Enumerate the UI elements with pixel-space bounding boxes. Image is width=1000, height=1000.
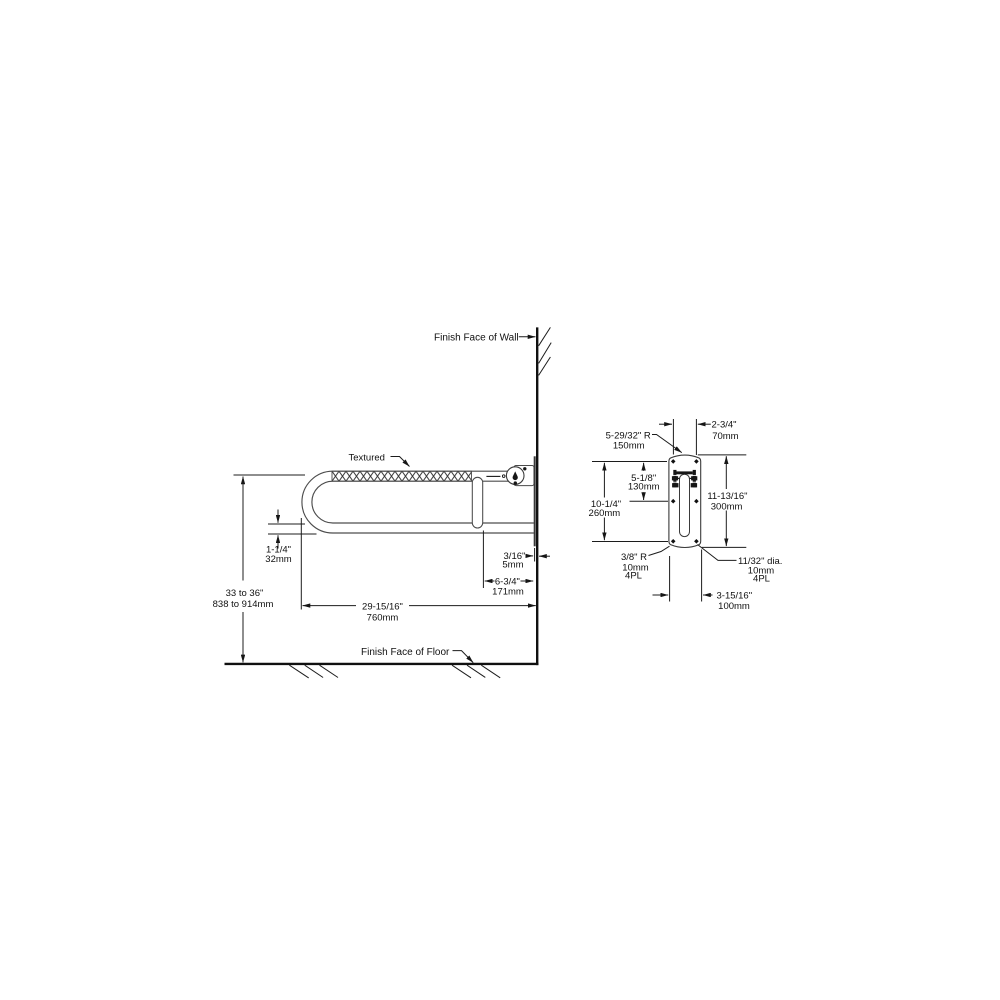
- svg-text:760mm: 760mm: [367, 613, 399, 624]
- svg-text:70mm: 70mm: [712, 431, 738, 442]
- svg-text:2-3/4": 2-3/4": [712, 420, 737, 431]
- svg-text:4PL: 4PL: [625, 570, 642, 581]
- svg-text:838 to 914mm: 838 to 914mm: [213, 599, 274, 610]
- svg-text:171mm: 171mm: [492, 587, 524, 598]
- svg-text:32mm: 32mm: [265, 554, 291, 565]
- svg-text:130mm: 130mm: [628, 481, 660, 492]
- svg-text:29-15/16": 29-15/16": [362, 601, 403, 612]
- svg-text:Finish Face of Floor: Finish Face of Floor: [361, 647, 450, 658]
- svg-text:4PL: 4PL: [753, 573, 770, 584]
- svg-text:150mm: 150mm: [613, 441, 645, 452]
- svg-text:Finish Face of Wall: Finish Face of Wall: [434, 333, 519, 344]
- svg-text:5mm: 5mm: [502, 559, 523, 570]
- svg-text:Textured: Textured: [349, 452, 385, 463]
- svg-text:100mm: 100mm: [718, 601, 750, 612]
- svg-text:300mm: 300mm: [711, 501, 743, 512]
- svg-text:260mm: 260mm: [589, 508, 621, 519]
- svg-text:33 to 36": 33 to 36": [226, 588, 264, 599]
- svg-text:6-3/4": 6-3/4": [495, 576, 520, 587]
- svg-text:11-13/16": 11-13/16": [707, 491, 747, 502]
